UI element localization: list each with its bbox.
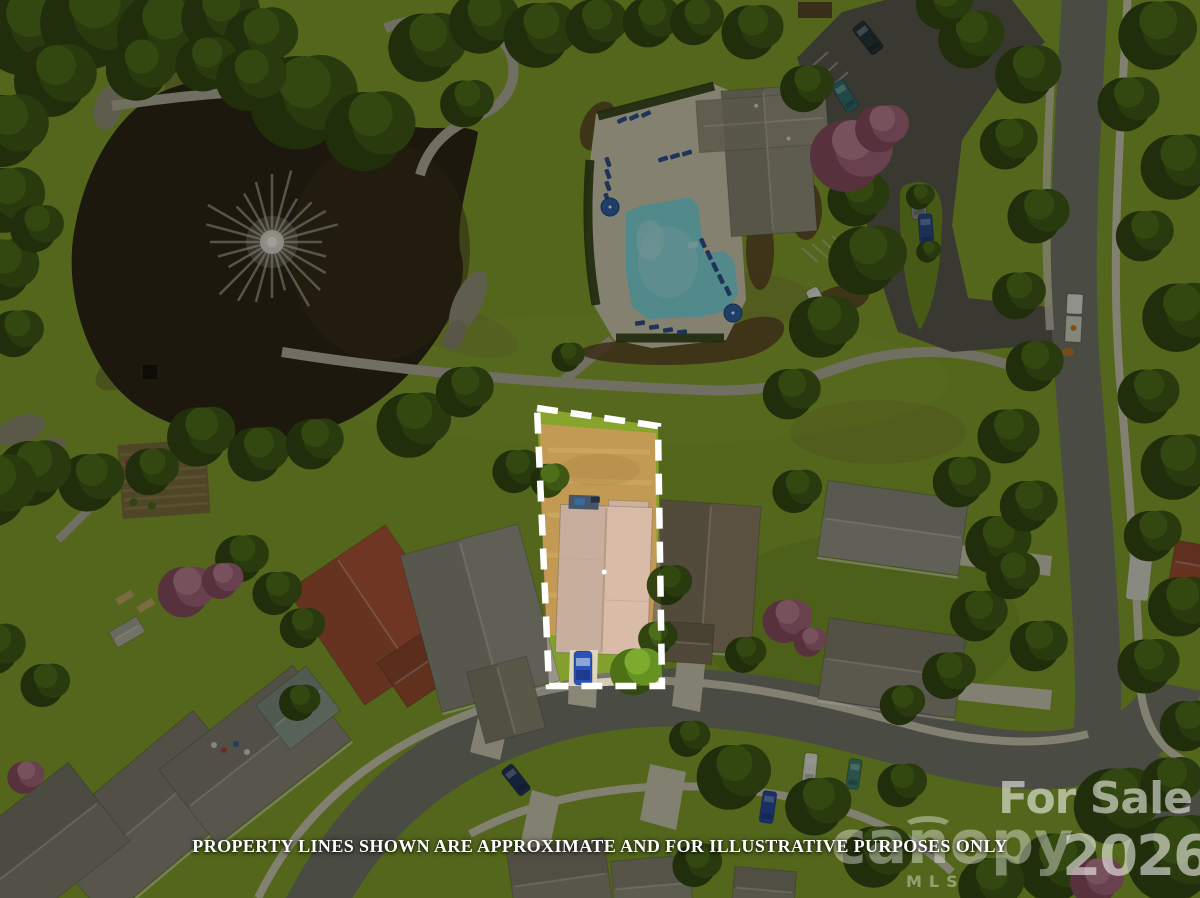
- aerial-scene: [0, 0, 1200, 898]
- mls-watermark: MLS: [906, 872, 965, 891]
- disclaimer-text: PROPERTY LINES SHOWN ARE APPROXIMATE AND…: [192, 836, 1007, 857]
- for-sale-watermark: For Sale: [998, 773, 1192, 824]
- subject-car: [574, 651, 592, 685]
- aerial-photo: canopy MLS For Sale 2026 PROPERTY LINES …: [0, 0, 1200, 898]
- year-watermark: 2026: [1062, 824, 1200, 889]
